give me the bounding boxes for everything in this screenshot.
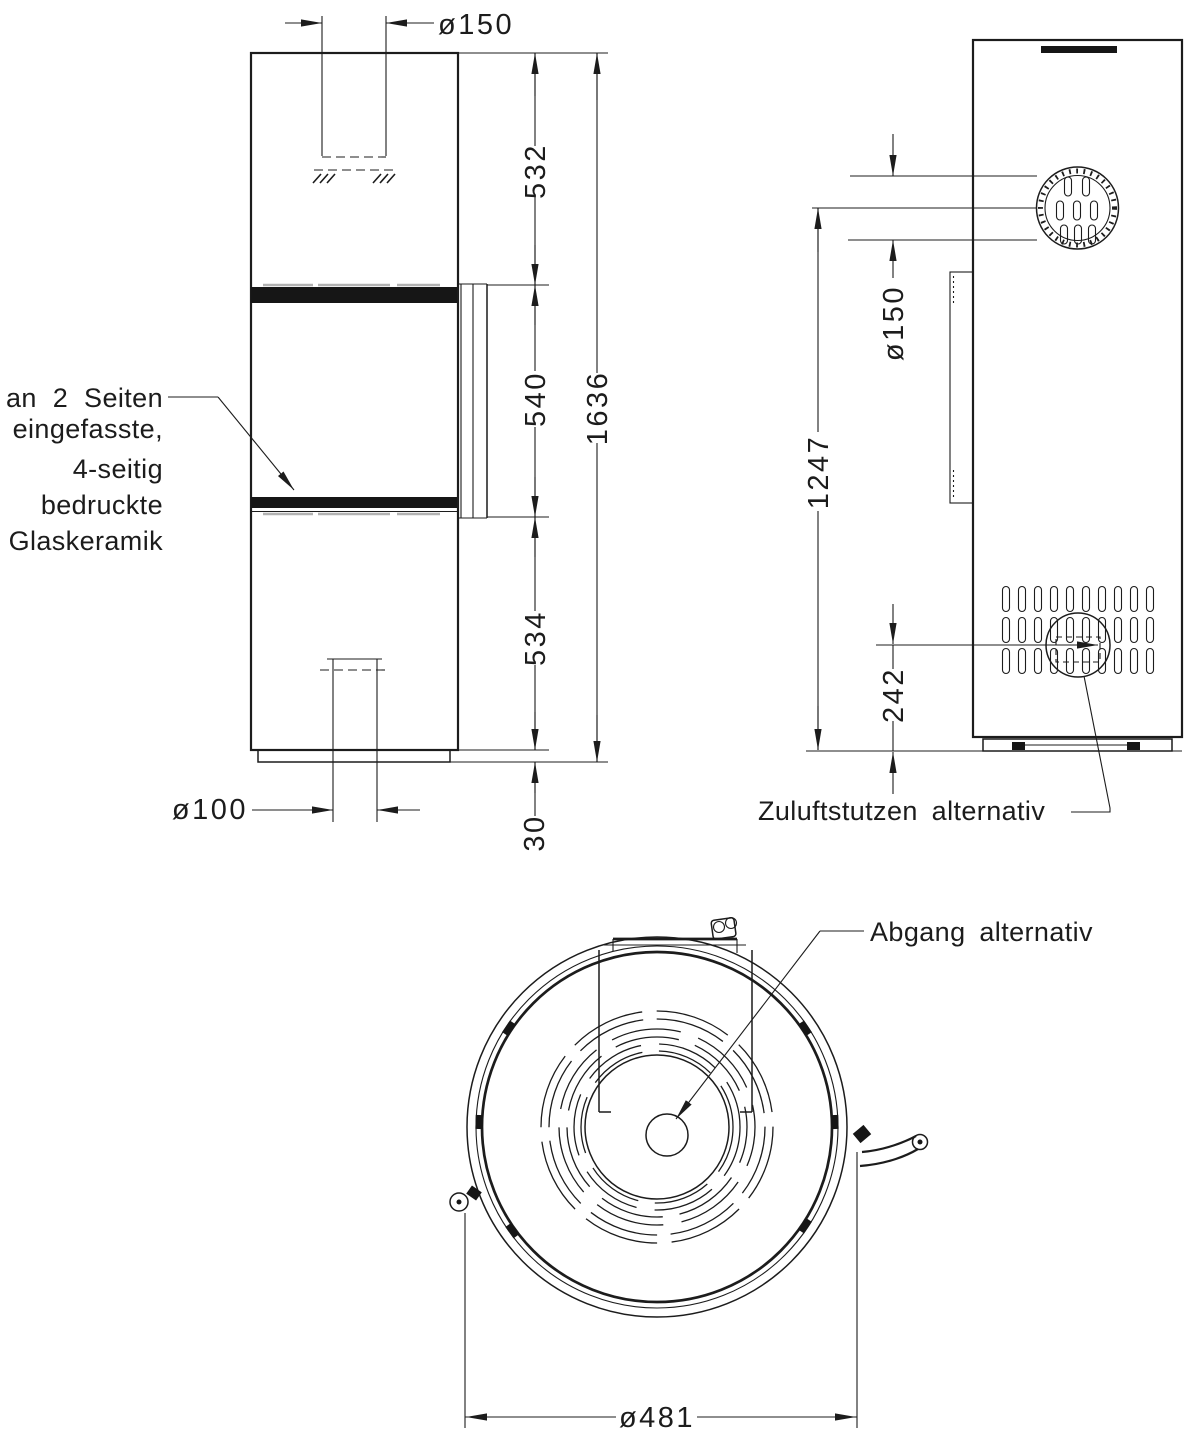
glass-note-line-1: an 2 Seiten	[6, 383, 163, 413]
dim-front-inlet-text: ø100	[172, 794, 248, 826]
top-door-handle	[853, 1125, 928, 1166]
side-body-outline	[973, 40, 1182, 737]
dim-front-flue-diameter: ø150	[285, 9, 514, 41]
dim-side-flue-diameter: ø150	[878, 134, 910, 361]
dim-side-242-text: 242	[878, 667, 910, 723]
top-liner-bands	[541, 1011, 773, 1243]
dim-front-base-height: 30	[519, 814, 551, 851]
side-vent-grille	[1003, 587, 1154, 674]
top-view: Abgang alternativ ø481	[450, 917, 1093, 1434]
dim-front-flue-text: ø150	[438, 9, 514, 41]
side-flue-port	[812, 167, 1119, 249]
stove-dimension-drawing: an 2 Seiten eingefasste, 4-seitig bedruc…	[0, 0, 1200, 1449]
front-base-plinth	[258, 750, 450, 762]
top-door-latch	[711, 917, 737, 939]
air-inlet-leader-line	[1071, 676, 1110, 812]
side-view: ø150 1247 242	[758, 40, 1182, 826]
top-outer-shell	[467, 937, 847, 1317]
dim-front-air-inlet: ø100	[172, 659, 420, 826]
glass-note-line-4: bedruckte	[41, 490, 163, 520]
glass-note-leader-line	[218, 397, 294, 490]
top-front-chord	[604, 939, 746, 953]
dim-front-total-height: 1636	[582, 53, 614, 762]
dim-side-inlet-center-height: 242	[878, 604, 910, 794]
glass-note-line-2: eingefasste,	[13, 414, 163, 444]
top-outlet-circle	[646, 1114, 688, 1156]
top-shell-inner-line	[476, 946, 838, 1308]
dim-front-lower-section: 534	[520, 610, 552, 666]
window-top-bar	[251, 287, 457, 303]
dim-top-diameter-text: ø481	[619, 1402, 695, 1434]
top-door-hinge	[450, 1185, 482, 1211]
front-view: an 2 Seiten eingefasste, 4-seitig bedruc…	[6, 9, 614, 852]
window-bottom-bar	[251, 497, 457, 508]
dim-side-flue-text: ø150	[878, 285, 910, 361]
dim-front-total-text: 1636	[582, 371, 614, 446]
side-glass-edge	[950, 272, 973, 503]
glass-note-line-3: 4-seitig	[73, 454, 163, 484]
glass-note-line-5: Glaskeramik	[9, 526, 164, 556]
front-flue-pipe-hidden	[313, 16, 395, 183]
top-firebox-circle	[585, 1055, 729, 1199]
dim-top-outer-diameter: ø481	[465, 1152, 857, 1434]
side-air-inlet-port	[876, 613, 1110, 677]
side-top-slot	[1041, 46, 1117, 53]
top-ring-marks	[475, 1020, 838, 1238]
dim-side-flue-center-height: 1247	[803, 208, 835, 750]
dim-front-upper-section: 532	[520, 143, 552, 199]
outlet-label-text: Abgang alternativ	[870, 917, 1093, 947]
technical-drawing-page: an 2 Seiten eingefasste, 4-seitig bedruc…	[0, 0, 1200, 1449]
top-body-ring	[482, 952, 832, 1302]
air-inlet-label-text: Zuluftstutzen alternativ	[758, 796, 1045, 826]
dim-front-window-height: 540	[520, 371, 552, 427]
side-port-reference-lines	[812, 176, 1037, 240]
front-glass-side-return	[458, 284, 487, 518]
dim-side-1247-text: 1247	[803, 435, 835, 510]
front-window	[251, 285, 457, 514]
side-base-detail	[1012, 742, 1140, 750]
front-dimension-chain: 532 540 534 30	[450, 53, 608, 852]
